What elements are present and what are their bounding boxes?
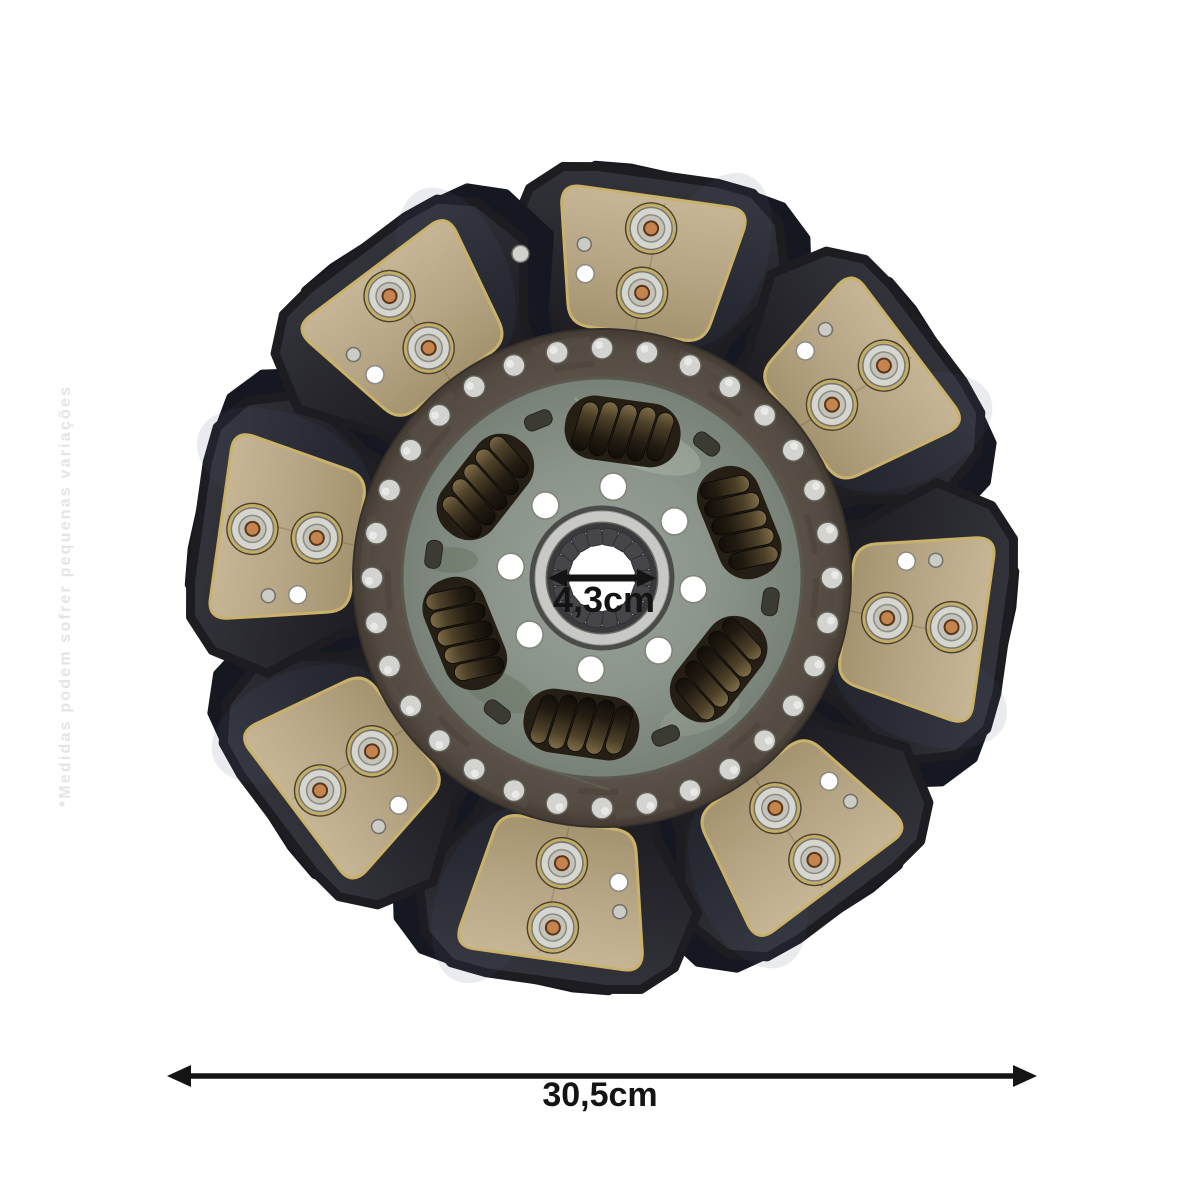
product-photo-canvas: *Medidas podem sofrer pequenas variações — [0, 0, 1200, 1200]
clutch-disc-image: 4,3cm 30,5cm — [0, 0, 1200, 1200]
arrowhead-right — [1013, 1065, 1037, 1087]
band-rivet — [591, 337, 613, 359]
arrowhead-left — [167, 1065, 191, 1087]
spline-tooth — [586, 527, 604, 546]
hub-bore-dimension: 4,3cm — [548, 569, 656, 620]
band-rivet — [361, 567, 383, 589]
band-rivet — [591, 797, 613, 819]
hub-diameter-label: 4,3cm — [553, 579, 655, 620]
disc-diameter-label: 30,5cm — [542, 1076, 657, 1114]
band-rivet — [821, 567, 843, 589]
outer-diameter-dimension: 30,5cm — [167, 1065, 1037, 1114]
